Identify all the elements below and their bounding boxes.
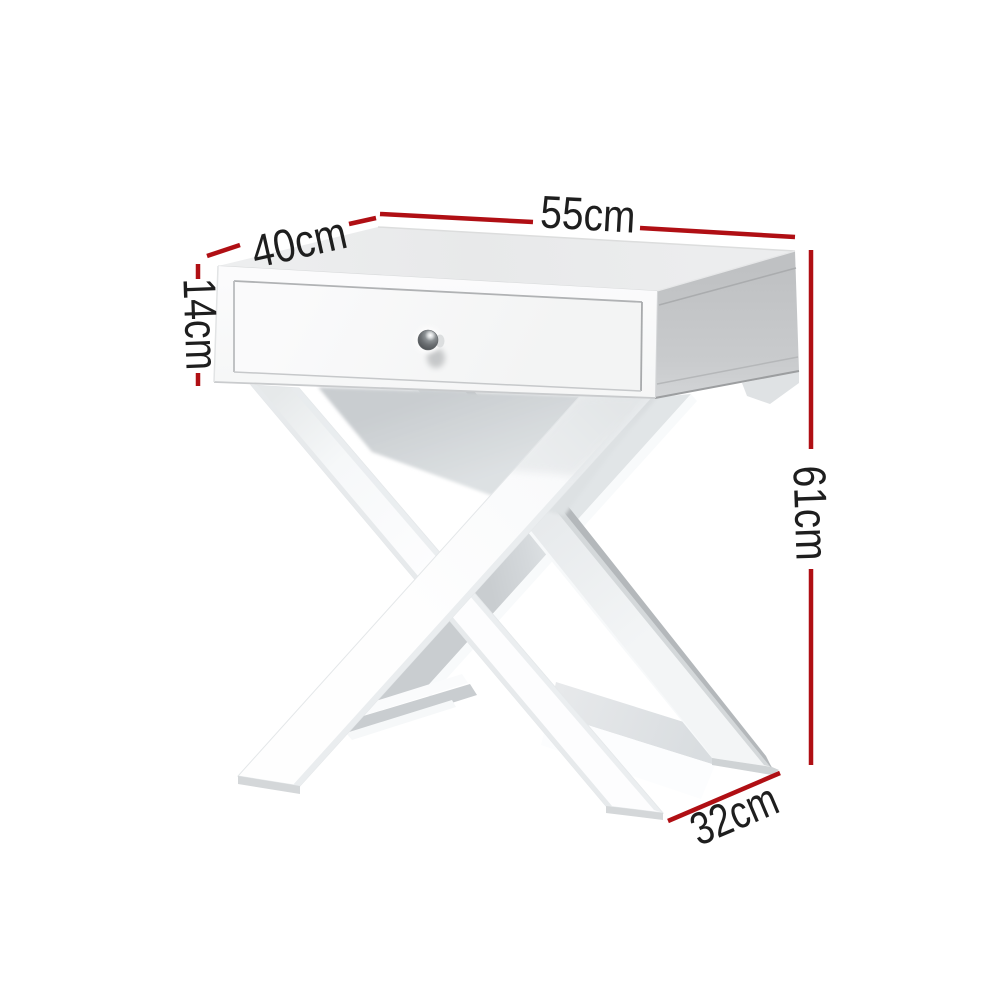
svg-text:14cm: 14cm (173, 277, 228, 371)
svg-text:55cm: 55cm (539, 185, 637, 242)
svg-text:61cm: 61cm (783, 465, 838, 562)
